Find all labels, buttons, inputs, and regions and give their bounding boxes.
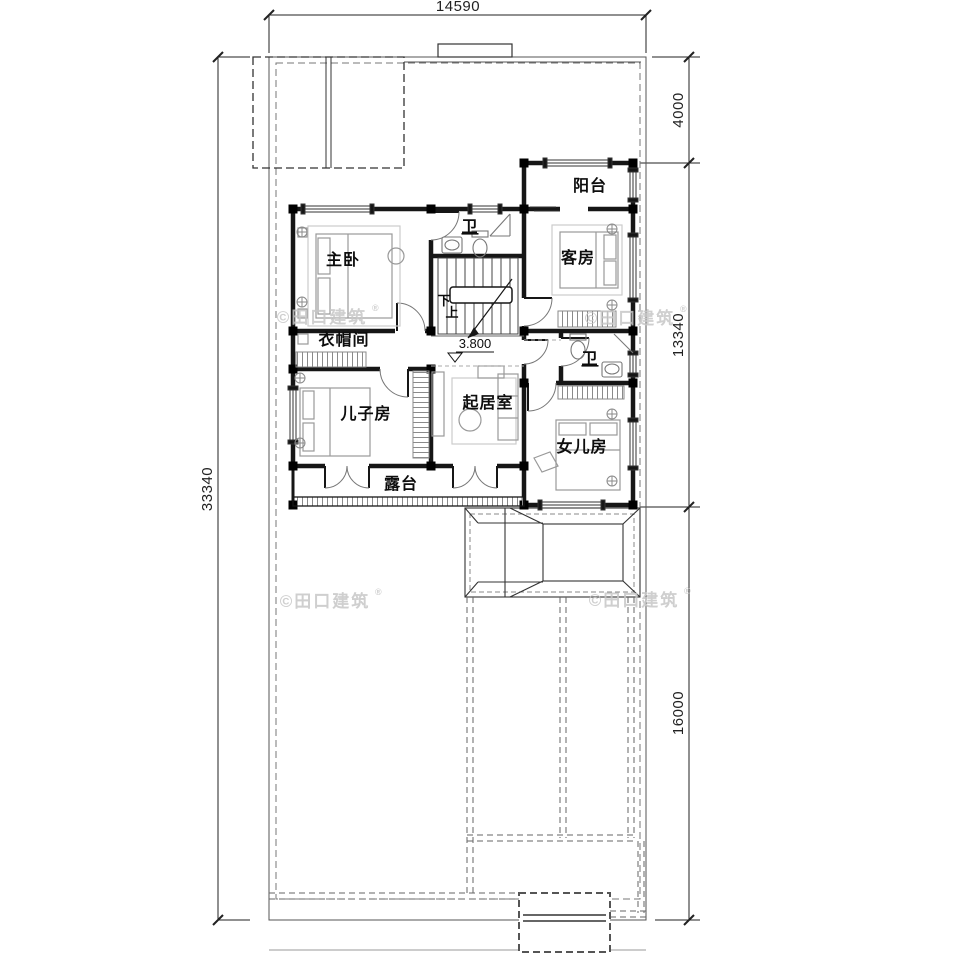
elevation-triangle-icon [448, 353, 462, 362]
label-master-bedroom: 主卧 [326, 250, 360, 269]
chimney-outline [438, 44, 512, 57]
watermark-reg-icon: ® [375, 587, 382, 597]
stair-up-label: 上 [445, 305, 458, 320]
label-bath-lower: 卫 [581, 351, 598, 368]
watermark-reg-icon: ® [684, 586, 691, 596]
dim-left-total: 33340 [199, 467, 216, 511]
label-guest-room: 客房 [561, 248, 595, 267]
label-terrace: 露台 [384, 474, 418, 493]
label-living-room: 起居室 [461, 393, 513, 412]
label-daughter-room: 女儿房 [556, 437, 607, 456]
watermark-reg-icon: ® [680, 304, 687, 314]
dimension-labels: 14590 33340 4000 13340 16000 [199, 0, 687, 735]
watermark-text: ©田口建筑 [280, 591, 371, 611]
watermark-text: ©田口建筑 [585, 308, 676, 328]
porch-roof-below [465, 508, 640, 597]
label-bath-upper: 卫 [461, 219, 478, 236]
dimension-lines [213, 10, 700, 925]
dim-right-bottom: 16000 [670, 691, 687, 735]
elevation-marker: 3.800 [448, 336, 494, 362]
watermark-text: ©田口建筑 [277, 307, 368, 327]
floor-plan-drawing: 14590 33340 4000 13340 16000 [0, 0, 960, 960]
watermark-reg-icon: ® [372, 303, 379, 313]
gate-structure [519, 893, 610, 952]
watermark-text: ©田口建筑 [589, 590, 680, 610]
courtyard-walls [269, 597, 646, 917]
elevation-value: 3.800 [459, 336, 492, 351]
terrace-railing [293, 497, 524, 506]
label-balcony: 阳台 [573, 176, 607, 195]
dim-top-width: 14590 [436, 0, 480, 15]
label-cloakroom: 衣帽间 [318, 330, 369, 349]
dim-right-top: 4000 [670, 92, 687, 127]
floor-plan-sheet: 14590 33340 4000 13340 16000 [0, 0, 960, 960]
label-son-room: 儿子房 [339, 404, 391, 423]
